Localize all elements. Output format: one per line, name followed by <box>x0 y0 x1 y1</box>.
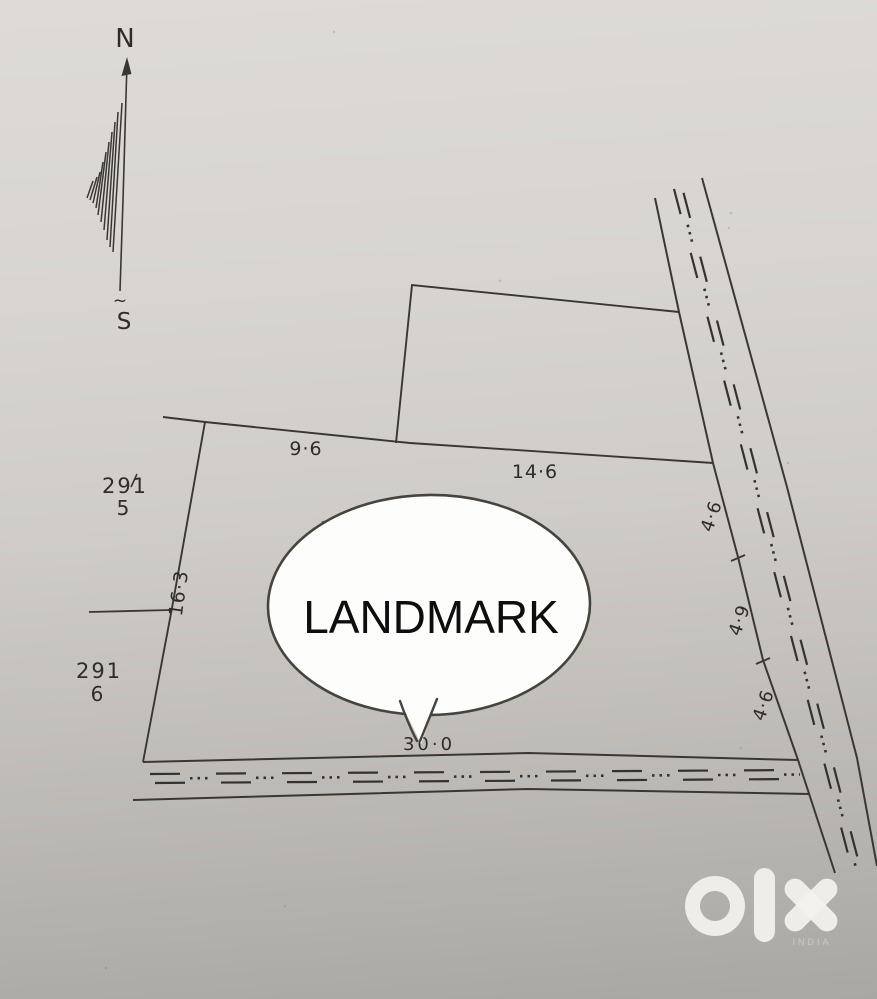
dim-left: 16·3 <box>165 569 193 618</box>
dim-right-middle: 4·9 <box>725 602 755 639</box>
landmark-callout: LANDMARK <box>266 492 592 744</box>
olx-bar-letter <box>754 868 775 942</box>
bottom-road-markings <box>150 770 800 783</box>
north-arrow-shaft <box>120 62 127 291</box>
dim-bottom: 30·0 <box>403 734 455 755</box>
structure-outline <box>396 285 679 443</box>
olx-o-letter <box>685 876 745 936</box>
bottom-road-top-line <box>143 753 798 762</box>
dim-top-right: 14·6 <box>512 461 558 483</box>
north-arrow-hatching <box>87 103 122 252</box>
olx-watermark: INDIA <box>685 868 842 947</box>
survey-numbers: 291 5 291 6 <box>76 474 148 706</box>
subdivision-divider-line <box>89 610 171 612</box>
landmark-label: LANDMARK <box>303 591 559 643</box>
survey-number-291-5: 291 <box>102 474 148 498</box>
survey-plot-map: N ~ S 9·6 1 <box>0 0 877 999</box>
north-arrow-head <box>122 57 132 76</box>
bottom-road-bottom-line <box>133 789 810 800</box>
olx-subtext: INDIA <box>792 937 831 947</box>
plot-top-edge <box>163 417 713 463</box>
dim-right-top: 4·6 <box>697 498 727 535</box>
compass-squiggle: ~ <box>113 291 127 311</box>
survey-subdivision-6: 6 <box>91 682 104 706</box>
north-arrow: N ~ S <box>87 24 135 335</box>
compass-south-label: S <box>117 309 132 335</box>
survey-number-291-6: 291 <box>76 659 122 683</box>
survey-subdivision-5: 5 <box>117 496 130 520</box>
bottom-road <box>133 753 810 800</box>
dim-right-bottom: 4·6 <box>749 687 779 724</box>
compass-north-label: N <box>115 24 134 54</box>
diagonal-road <box>655 178 877 873</box>
map-drawing: N ~ S 9·6 1 <box>0 0 877 999</box>
dim-top-left: 9·6 <box>289 438 322 460</box>
